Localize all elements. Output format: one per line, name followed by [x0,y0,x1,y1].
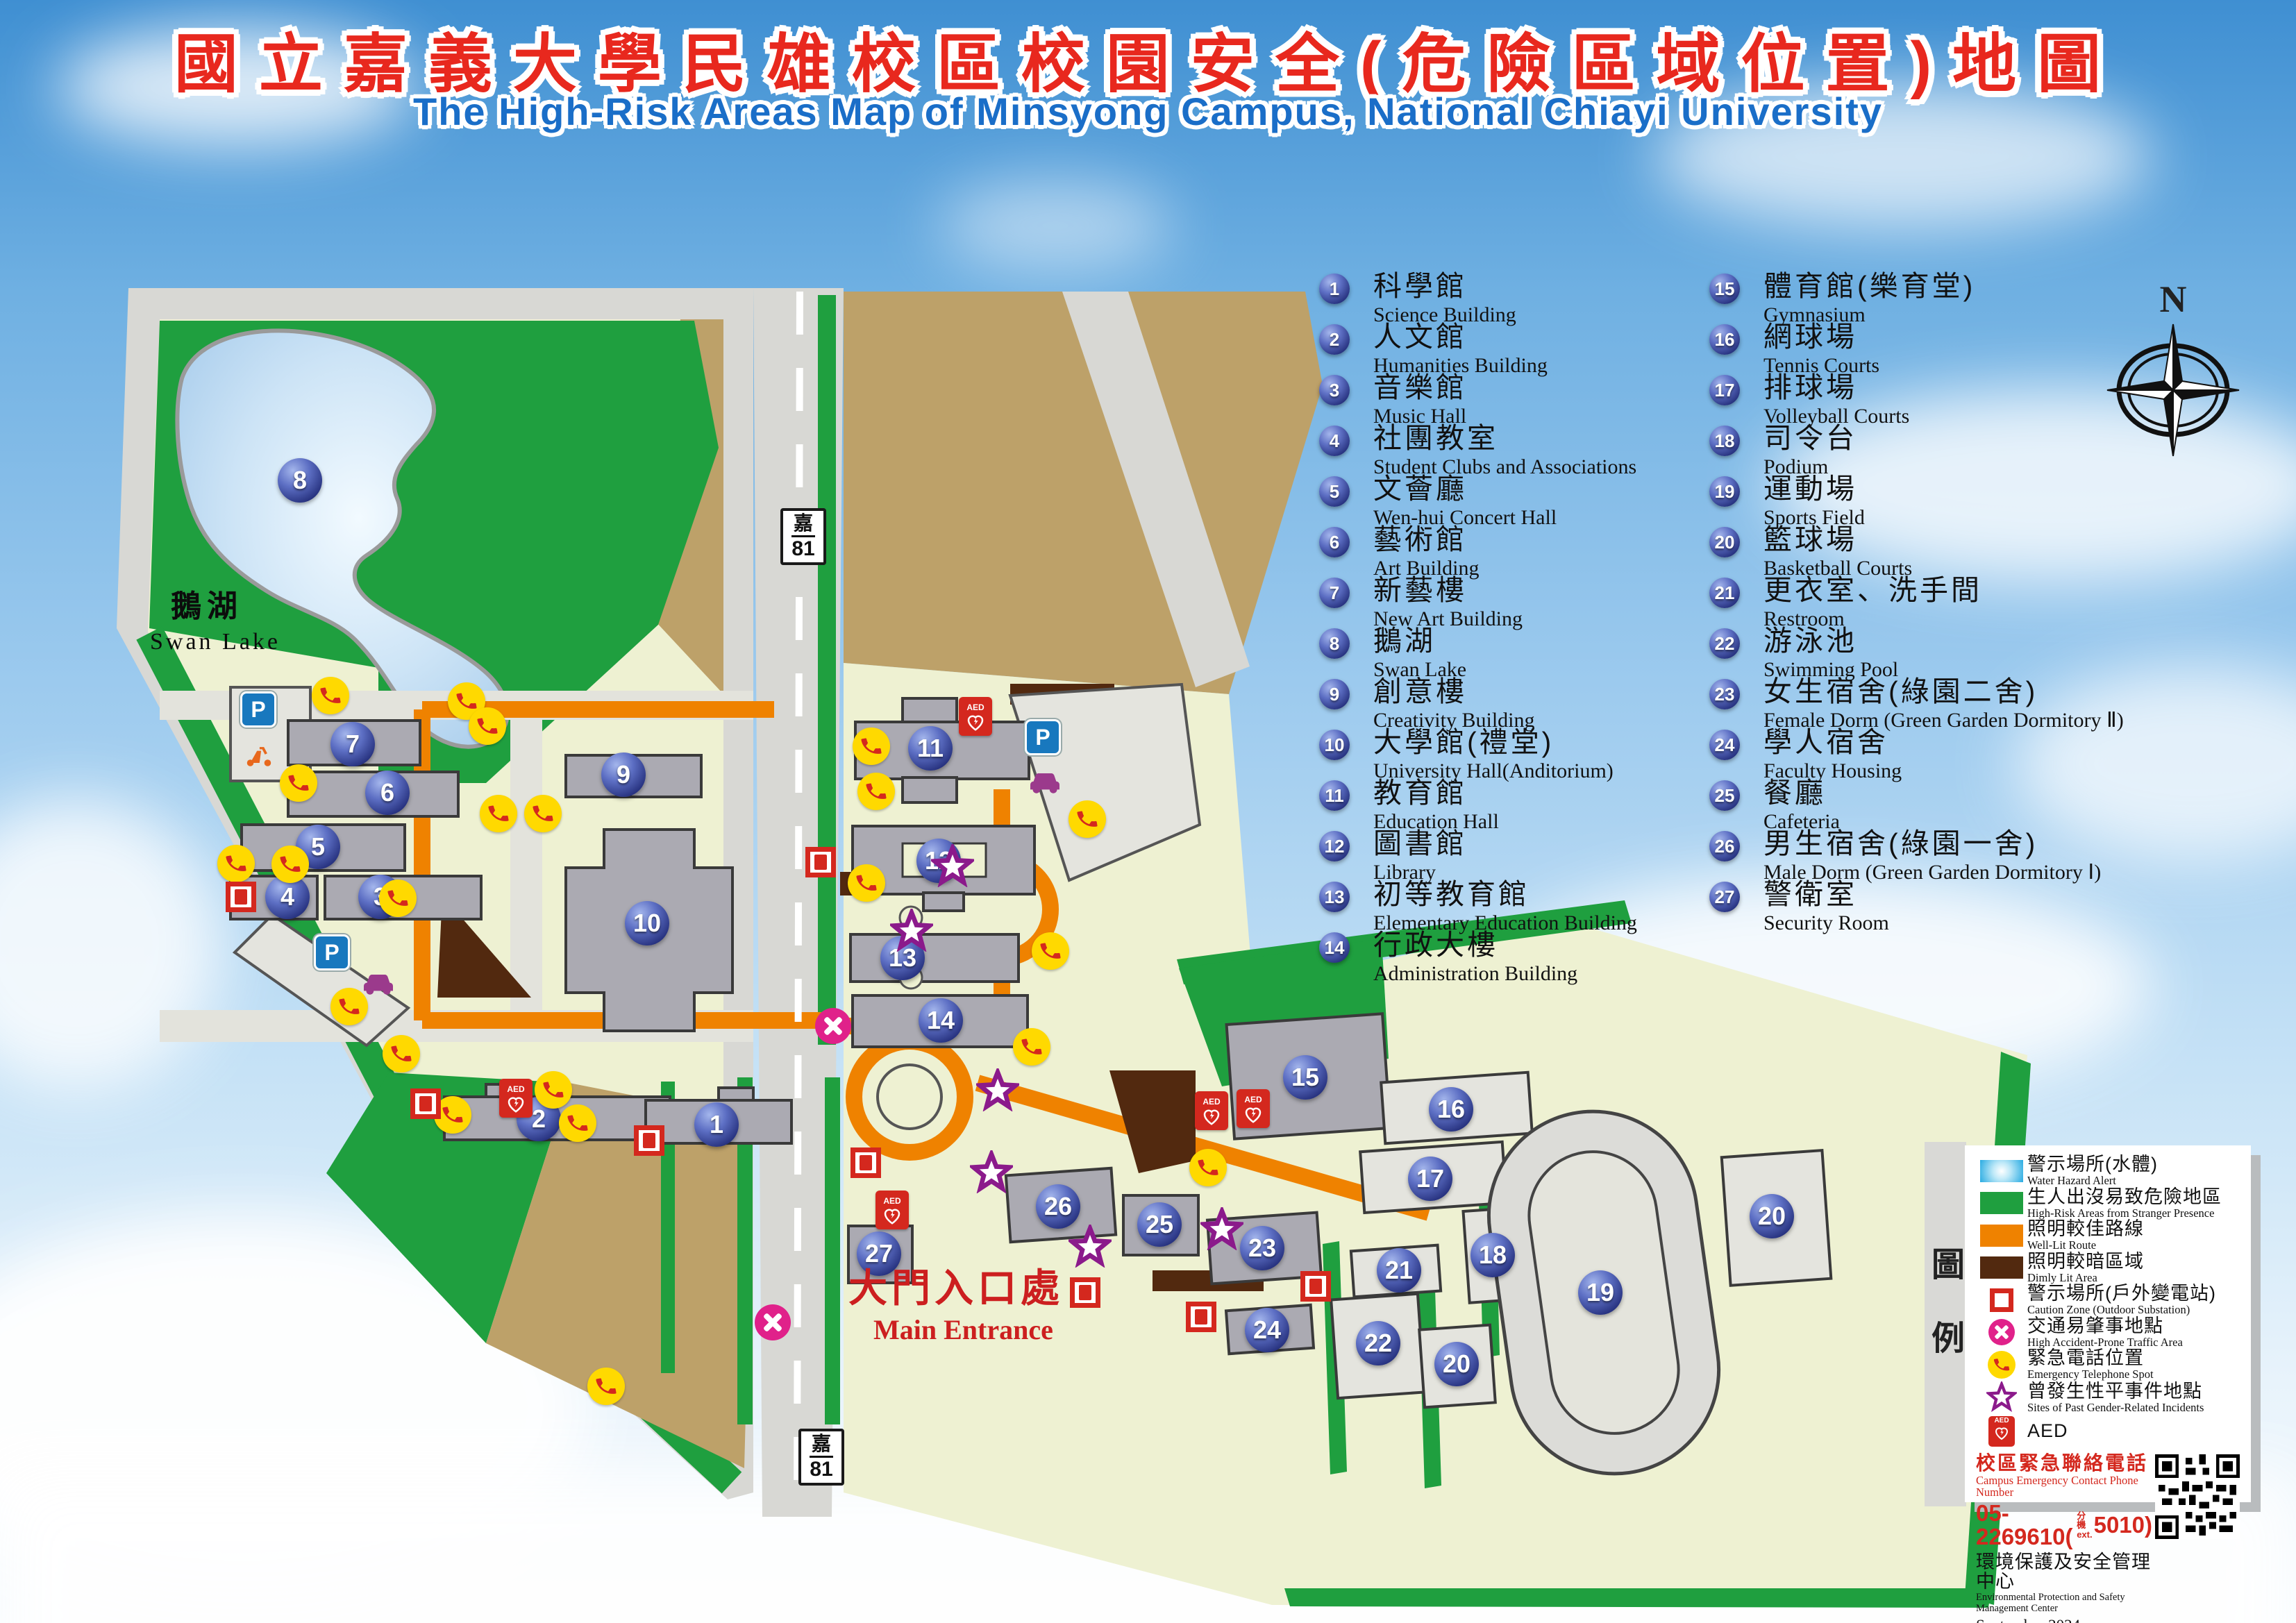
qr-code [2155,1454,2240,1539]
legend-label-en: Well-Lit Route [2027,1240,2144,1252]
building-list-item-2: 2人文館Humanities Building [1319,323,1548,376]
map-building-marker-22: 22 [1356,1321,1400,1365]
building-name-zh: 創意樓 [1373,678,1535,706]
parking-sign-icon: P [314,934,350,970]
map-building-marker-15: 15 [1283,1055,1327,1100]
legend-label-zh: 照明較佳路線 [2027,1220,2144,1238]
legend-item-green: 生人出沒易致危險地區High-Risk Areas from Stranger … [1976,1188,2240,1220]
building-name-zh: 運動場 [1763,475,1865,503]
substation-icon [1186,1302,1216,1332]
building-number-badge: 6 [1319,527,1350,557]
campus-safety-map-poster: 1234567891011121314151617181920202122232… [0,0,2296,1623]
building-number-badge: 26 [1709,831,1740,861]
building-list-item-17: 17排球場Volleyball Courts [1709,373,1909,427]
compass-rose-icon [2104,321,2243,460]
parking-sign-icon: P [1025,719,1061,755]
substation-icon [410,1088,441,1119]
map-building-marker-17: 17 [1408,1157,1452,1201]
aed-icon: AED [875,1191,909,1229]
building-name-en: Administration Building [1373,964,1577,984]
legend-label-zh: 生人出沒易致危險地區 [2027,1188,2222,1206]
building-list-item-14: 14行政大樓Administration Building [1319,931,1577,984]
emergency-phone-icon [217,845,255,882]
map-building-marker-24: 24 [1245,1308,1289,1352]
substation-icon [1300,1271,1331,1302]
building-number-badge: 25 [1709,780,1740,811]
building-name-zh: 女生宿舍(綠園二舍) [1763,678,2124,706]
building-number-badge: 24 [1709,730,1740,760]
building-name-zh: 籃球場 [1763,525,1912,554]
emergency-phone-icon [1032,932,1069,970]
stranger-risk-swatch [1980,1192,2023,1214]
contact-title-en: Campus Emergency Contact Phone Number [1976,1474,2152,1499]
legend-item-orange: 照明較佳路線Well-Lit Route [1976,1220,2240,1252]
contact-title-zh: 校區緊急聯絡電話 [1976,1453,2152,1473]
contact-date: September 2024 [1976,1617,2152,1623]
emergency-phone-icon [379,880,417,917]
gender-incident-icon [1986,1381,2017,1415]
building-number-badge: 1 [1319,274,1350,304]
building-number-badge: 3 [1319,375,1350,405]
building-list-item-24: 24學人宿舍Faculty Housing [1709,728,1902,782]
building-name-zh: 初等教育館 [1373,880,1637,909]
building-number-badge: 17 [1709,375,1740,405]
building-name-zh: 社團教室 [1373,424,1636,453]
building-number-badge: 23 [1709,679,1740,709]
building-list-item-7: 7新藝樓New Art Building [1319,576,1523,630]
map-building-marker-20: 20 [1750,1194,1794,1238]
legend-label-zh: 緊急電話位置 [2027,1349,2154,1368]
building-name-zh: 新藝樓 [1373,576,1523,605]
road-sign-prefix: 嘉 [812,1434,831,1454]
map-building-marker-1: 1 [694,1102,739,1147]
legend-label-en: High Accident-Prone Traffic Area [2027,1337,2183,1349]
map-building-marker-18: 18 [1470,1233,1515,1277]
main-entrance-label-zh: 大門入口處 [848,1269,1064,1308]
legend-item-square: 警示場所(戶外變電站)Caution Zone (Outdoor Substat… [1976,1284,2240,1316]
building-number-badge: 13 [1319,882,1350,912]
building-number-badge: 2 [1319,324,1350,355]
building-number-badge: 8 [1319,628,1350,659]
phone-ext-zh: 分機 [2077,1511,2092,1530]
building-number-badge: 5 [1319,476,1350,507]
map-building-marker-6: 6 [365,771,410,815]
building-name-zh: 警衛室 [1763,880,1889,909]
main-entrance-label-en: Main Entrance [873,1316,1053,1344]
building-name-zh: 游泳池 [1763,627,1898,655]
building-number-badge: 20 [1709,527,1740,557]
traffic-accident-icon [1988,1319,2015,1345]
emergency-phone-icon [312,677,349,714]
substation-icon [1990,1288,2013,1312]
legend-vertical-char: 例 [1932,1311,1965,1359]
emergency-phone-icon [1988,1351,2016,1379]
legend-label-en: Sites of Past Gender-Related Incidents [2027,1402,2204,1414]
map-building-marker-20: 20 [1434,1342,1479,1386]
building-name-zh: 體育館(樂育堂) [1763,272,1975,301]
emergency-phone-icon [1189,1149,1227,1186]
building-list-item-16: 16網球場Tennis Courts [1709,323,1879,376]
building-list-item-27: 27警衛室Security Room [1709,880,1889,934]
map-building-marker-10: 10 [625,901,669,945]
gender-incident-icon [931,844,974,887]
building-number-badge: 4 [1319,426,1350,456]
well-lit-swatch [1980,1225,2023,1247]
building-name-zh: 人文館 [1373,323,1548,351]
building-list-item-5: 5文薈廳Wen-hui Concert Hall [1319,475,1557,528]
map-building-marker-26: 26 [1036,1184,1080,1229]
emergency-phone-icon [535,1071,572,1109]
emergency-phone-icon [1069,800,1106,838]
traffic-accident-icon [755,1304,791,1340]
emergency-phone-icon [524,795,562,832]
legend-item-brown: 照明較暗區域Dimly Lit Area [1976,1252,2240,1284]
swan-lake-label-en: Swan Lake [150,630,280,654]
legend-vertical-char: 圖 [1932,1237,1965,1286]
building-name-zh: 學人宿舍 [1763,728,1902,757]
building-name-zh: 排球場 [1763,373,1909,402]
road-sign-number: 81 [791,535,814,560]
building-list-item-1: 1科學館Science Building [1319,272,1516,326]
building-number-badge: 14 [1319,932,1350,963]
legend-vertical-label: 圖例 [1932,1237,1965,1359]
map-building-marker-14: 14 [919,998,963,1043]
substation-icon [1070,1277,1100,1308]
legend-item-star: 曾發生性平事件地點Sites of Past Gender-Related In… [1976,1381,2240,1415]
phone-suffix: 5010) [2094,1513,2152,1538]
map-building-marker-19: 19 [1578,1270,1623,1315]
map-building-marker-9: 9 [601,752,646,797]
building-number-badge: 15 [1709,274,1740,304]
legend-item-phone: 緊急電話位置Emergency Telephone Spot [1976,1349,2240,1381]
aed-icon: AED [959,697,992,736]
emergency-phone-icon [480,795,517,832]
legend-label-en: Emergency Telephone Spot [2027,1369,2154,1381]
building-list-item-23: 23女生宿舍(綠園二舍)Female Dorm (Green Garden Do… [1709,678,2124,731]
aed-icon: AED [499,1079,533,1118]
building-list-item-13: 13初等教育館Elementary Education Building [1319,880,1637,934]
building-name-zh: 教育館 [1373,779,1499,807]
page-title-en: The High-Risk Areas Map of Minsyong Camp… [0,89,2296,134]
map-building-marker-8: 8 [278,458,322,503]
emergency-phone-icon [280,764,317,802]
gender-incident-icon [1200,1207,1243,1250]
building-number-badge: 27 [1709,882,1740,912]
legend-item-water: 警示場所(水體)Water Hazard Alert [1976,1155,2240,1187]
phone-ext-en: ext. [2077,1530,2092,1540]
legend-panel: 警示場所(水體)Water Hazard Alert生人出沒易致危險地區High… [1965,1145,2251,1502]
legend-label-en: Water Hazard Alert [2027,1175,2158,1187]
gender-incident-icon [970,1150,1013,1193]
building-list-item-3: 3音樂館Music Hall [1319,373,1467,427]
emergency-phone-icon [469,707,506,745]
building-number-badge: 10 [1319,730,1350,760]
contact-phone-number: 05-2269610( 分機ext. 5010) [1976,1502,2152,1549]
emergency-phone-icon [559,1104,596,1142]
dimly-lit-swatch [1980,1256,2023,1279]
legend-label-zh: 照明較暗區域 [2027,1252,2144,1271]
building-name-zh: 大學館(禮堂) [1373,728,1614,757]
building-name-zh: 科學館 [1373,272,1516,301]
legend-item-aed: AEDAED [1976,1416,2240,1447]
substation-icon [634,1125,664,1156]
emergency-phone-icon [1013,1028,1050,1066]
building-number-badge: 21 [1709,578,1740,608]
legend-label-en: High-Risk Areas from Stranger Presence [2027,1208,2222,1220]
building-name-zh: 藝術館 [1373,525,1480,554]
building-list-item-26: 26男生宿舍(綠園一舍)Male Dorm (Green Garden Dorm… [1709,830,2101,883]
emergency-phone-icon [857,773,895,810]
emergency-phone-icon [853,728,890,765]
water-swatch [1980,1160,2023,1182]
building-name-en: Security Room [1763,913,1889,934]
traffic-accident-icon [815,1008,851,1044]
building-list-item-19: 19運動場Sports Field [1709,475,1865,528]
road-sign-number: 81 [810,1456,832,1480]
gender-incident-icon [1069,1225,1112,1268]
building-number-badge: 11 [1319,780,1350,811]
building-number-badge: 22 [1709,628,1740,659]
building-name-zh: 圖書館 [1373,830,1467,858]
building-name-zh: 音樂館 [1373,373,1467,402]
legend-label-zh: 曾發生性平事件地點 [2027,1382,2204,1401]
parking-sign-icon: P [240,691,276,728]
substation-icon [805,847,836,877]
building-list-item-22: 22游泳池Swimming Pool [1709,627,1898,680]
gender-incident-icon [890,909,933,952]
building-name-zh: 網球場 [1763,323,1879,351]
building-name-zh: 餐廳 [1763,779,1840,807]
building-list-item-12: 12圖書館Library [1319,830,1467,883]
building-number-badge: 9 [1319,679,1350,709]
emergency-phone-icon [848,864,885,902]
map-building-marker-23: 23 [1240,1226,1284,1270]
scooter-icon [244,740,274,771]
emergency-contact-block: 校區緊急聯絡電話 Campus Emergency Contact Phone … [1976,1453,2240,1623]
road-sign-bottom: 嘉 81 [798,1429,844,1486]
emergency-phone-icon [587,1368,625,1405]
emergency-phone-icon [383,1035,420,1073]
map-building-marker-25: 25 [1137,1202,1182,1247]
building-name-zh: 男生宿舍(綠園一舍) [1763,830,2101,858]
compass-north-label: N [2104,278,2243,321]
legend-label-zh: AED [2027,1422,2068,1440]
building-list-item-9: 9創意樓Creativity Building [1319,678,1535,731]
legend-label-en: Caution Zone (Outdoor Substation) [2027,1304,2216,1316]
legend-item-xmark: 交通易肇事地點High Accident-Prone Traffic Area [1976,1317,2240,1349]
building-name-zh: 文薈廳 [1373,475,1557,503]
legend-label-en: Dimly Lit Area [2027,1272,2144,1284]
building-list-item-6: 6藝術館Art Building [1319,525,1480,579]
building-name-zh: 鵝湖 [1373,627,1466,655]
aed-icon: AED [1237,1089,1270,1128]
building-number-badge: 16 [1709,324,1740,355]
aed-icon: AED [1988,1416,2015,1447]
aed-icon: AED [1195,1091,1228,1130]
building-list-item-20: 20籃球場Basketball Courts [1709,525,1912,579]
building-number-badge: 7 [1319,578,1350,608]
compass-rose: N [2104,278,2243,463]
building-number-badge: 19 [1709,476,1740,507]
building-list-item-11: 11教育館Education Hall [1319,779,1499,832]
building-number-badge: 12 [1319,831,1350,861]
building-list-column-1: 1科學館Science Building2人文館Humanities Build… [1319,272,1708,1008]
map-building-marker-11: 11 [908,726,953,771]
road-sign-prefix: 嘉 [794,514,813,533]
building-list-item-21: 21更衣室、洗手間Restroom [1709,576,1982,630]
building-number-badge: 18 [1709,426,1740,456]
car-icon [1025,764,1064,802]
emergency-phone-icon [271,846,309,883]
building-name-zh: 行政大樓 [1373,931,1577,959]
substation-icon [226,882,256,912]
building-name-zh: 更衣室、洗手間 [1763,576,1982,605]
building-list-item-8: 8鵝湖Swan Lake [1319,627,1466,680]
building-list-item-4: 4社團教室Student Clubs and Associations [1319,424,1636,478]
map-building-marker-7: 7 [330,722,375,766]
legend-label-zh: 警示場所(戶外變電站) [2027,1284,2216,1303]
contact-org-zh: 環境保護及安全管理中心 [1976,1552,2152,1592]
legend-label-zh: 交通易肇事地點 [2027,1317,2183,1336]
road-sign-top: 嘉 81 [780,508,826,565]
building-list-item-25: 25餐廳Cafeteria [1709,779,1840,832]
building-list-item-15: 15體育館(樂育堂)Gymnasium [1709,272,1975,326]
substation-icon [850,1147,881,1178]
car-icon [359,965,398,1004]
swan-lake-label-zh: 鵝湖 [171,591,243,622]
building-name-zh: 司令台 [1763,424,1857,453]
map-building-marker-16: 16 [1429,1087,1473,1132]
legend-rows: 警示場所(水體)Water Hazard Alert生人出沒易致危險地區High… [1976,1155,2240,1447]
contact-org-en: Environmental Protection and Safety Mana… [1976,1592,2152,1613]
gender-incident-icon [976,1068,1019,1111]
map-building-marker-21: 21 [1377,1248,1421,1293]
legend-label-zh: 警示場所(水體) [2027,1155,2158,1174]
building-list-item-18: 18司令台Podium [1709,424,1857,478]
building-list-item-10: 10大學館(禮堂)University Hall(Anditorium) [1319,728,1614,782]
phone-prefix: 05-2269610( [1976,1502,2075,1549]
